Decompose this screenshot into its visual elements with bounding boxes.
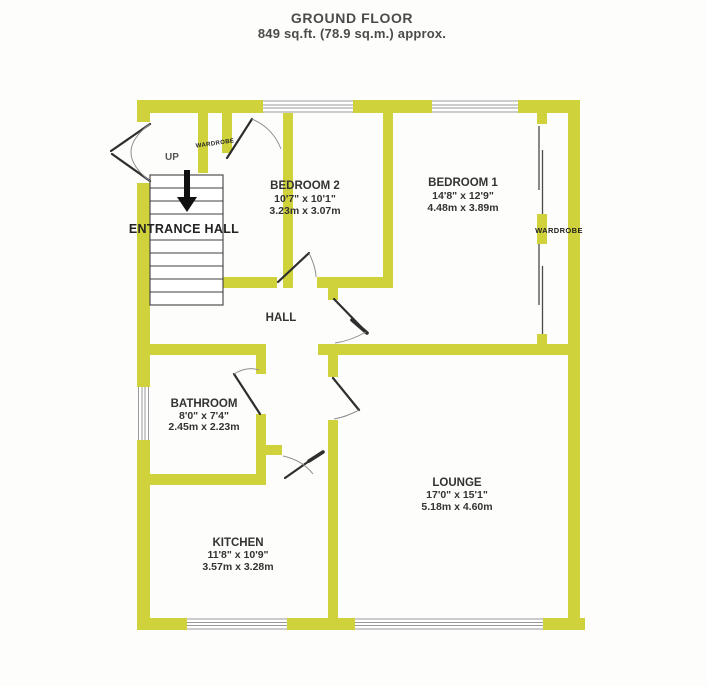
window-bedroom2 [263, 100, 353, 113]
plan-title: GROUND FLOOR [291, 10, 413, 26]
room-name: LOUNGE [432, 477, 482, 489]
window-glass [187, 618, 287, 630]
room-name: BEDROOM 1 [428, 177, 498, 189]
arrow-shaft [184, 170, 190, 198]
window-kitchen [187, 618, 287, 630]
plan-area: 849 sq.ft. (78.9 sq.m.) approx. [258, 26, 446, 41]
room-dims-metric: 3.57m x 3.28m [202, 561, 273, 573]
label-wardrobe-bedroom1: WARDROBE [535, 226, 583, 235]
room-name: KITCHEN [212, 537, 263, 549]
label-entrance-hall: ENTRANCE HALL [129, 222, 239, 236]
wall-kitchen-entry-stub [266, 445, 282, 455]
wall-wardrobe-stub-bottom [537, 334, 547, 344]
label-bathroom: BATHROOM 8'0" x 7'4" 2.45m x 2.23m [168, 398, 239, 433]
label-bedroom2: BEDROOM 2 10'7" x 10'1" 3.23m x 3.07m [269, 180, 340, 217]
room-dims-metric: 3.23m x 3.07m [269, 205, 340, 217]
floorplan-page: GROUND FLOOR 849 sq.ft. (78.9 sq.m.) app… [0, 0, 707, 686]
window-glass [432, 100, 518, 113]
wall-lounge-top [318, 344, 580, 355]
room-dims-imperial: 11'8" x 10'9" [207, 549, 268, 561]
wall-hall-north-left [223, 277, 277, 288]
room-dims-imperial: 14'8" x 12'9" [432, 190, 494, 202]
room-name: BATHROOM [171, 398, 238, 410]
wall-right [568, 100, 580, 630]
label-bedroom1: BEDROOM 1 14'8" x 12'9" 4.48m x 3.89m [427, 177, 498, 214]
room-dims-metric: 2.45m x 2.23m [168, 421, 239, 433]
label-kitchen: KITCHEN 11'8" x 10'9" 3.57m x 3.28m [202, 537, 273, 573]
room-dims-imperial: 10'7" x 10'1" [274, 193, 336, 205]
room-dims-metric: 4.48m x 3.89m [427, 202, 498, 214]
room-dims-imperial: 17'0" x 15'1" [426, 489, 488, 501]
window-lounge [355, 618, 543, 630]
wall-bedroom-divider [383, 112, 393, 288]
wall-bathroom-right-lower [256, 414, 266, 474]
wall-bedroom2-bottom [317, 277, 393, 288]
wall-bathroom-bottom [150, 474, 266, 485]
wall-hall-stub [328, 288, 338, 300]
wall-lounge-west-upper [328, 355, 338, 377]
window-glass [263, 100, 353, 113]
staircase [150, 170, 223, 305]
wall-closet-right [222, 112, 232, 153]
label-up: UP [165, 152, 179, 163]
window-bathroom [137, 387, 150, 440]
window-glass [355, 618, 543, 630]
wall-bathroom-top [150, 344, 266, 355]
floorplan-svg: GROUND FLOOR 849 sq.ft. (78.9 sq.m.) app… [0, 0, 707, 686]
wall-lounge-west-lower [328, 420, 338, 618]
label-hall: HALL [266, 312, 297, 324]
room-name: BEDROOM 2 [270, 180, 340, 192]
room-dims-metric: 5.18m x 4.60m [421, 501, 492, 513]
window-bedroom1 [432, 100, 518, 113]
wall-wardrobe-stub-top [537, 112, 547, 124]
